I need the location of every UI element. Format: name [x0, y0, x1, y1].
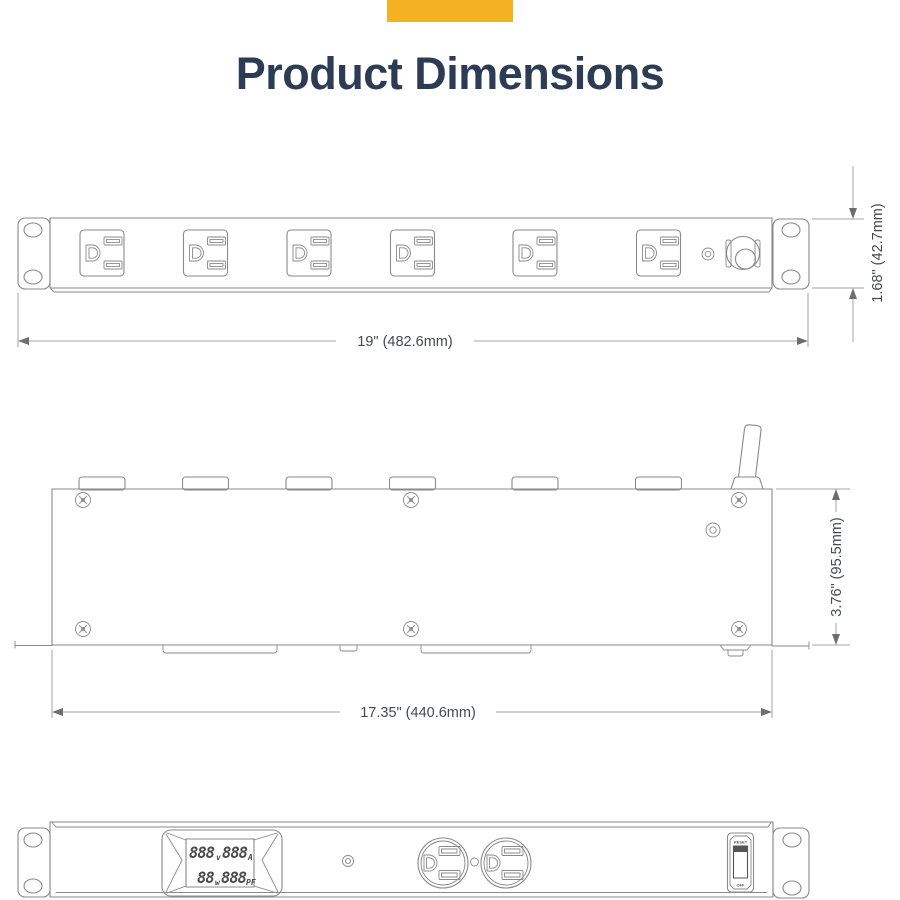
front-width-label: 19" (482.6mm) — [357, 334, 452, 350]
outlet — [481, 838, 531, 888]
screw-icon — [732, 622, 747, 637]
top-height-label: 3.76" (95.5mm) — [829, 517, 845, 616]
switch-off-label: OFF — [737, 883, 746, 888]
outlet — [184, 230, 228, 276]
front-edge-flange — [15, 642, 809, 657]
power-cord — [731, 425, 763, 489]
rocker-top-bar — [734, 847, 747, 853]
rack-ear-hole — [782, 223, 800, 237]
top-view: 17.35" (440.6mm) 3.76" (95.5mm) — [15, 425, 850, 721]
screw-icon — [76, 493, 91, 508]
outlet — [80, 230, 124, 276]
panel-hole-small — [471, 858, 479, 866]
lcd-watts-value: 88 — [197, 869, 214, 887]
front-height-label: 1.68" (42.7mm) — [870, 203, 886, 302]
power-switch: RESET OFF — [728, 833, 754, 892]
outlet — [418, 838, 468, 888]
front-width-dimension: 19" (482.6mm) — [18, 293, 808, 350]
switch-bump — [720, 645, 751, 656]
lcd-volts-unit: v — [216, 853, 221, 862]
chassis-hole — [706, 523, 720, 537]
lcd-display: 888 v 888 A 88 w 888 PF — [162, 830, 282, 896]
screw-icon — [732, 493, 747, 508]
rack-ear-hole — [24, 223, 42, 237]
lcd-pf-unit: PF — [246, 878, 256, 887]
mounting-bracket-left — [18, 218, 50, 289]
strip-body — [50, 822, 773, 897]
front-view: 19" (482.6mm) 1.68" (42.7mm) — [18, 166, 886, 350]
led-indicator — [702, 248, 714, 260]
screw-icon — [76, 622, 91, 637]
lcd-volts-value: 888 — [189, 844, 215, 862]
outlet — [513, 230, 557, 276]
switch-reset-label: RESET — [734, 840, 748, 845]
technical-drawing: 19" (482.6mm) 1.68" (42.7mm) — [0, 0, 900, 900]
product-dimensions-page: Product Dimensions — [0, 0, 900, 900]
screw-icon — [404, 622, 419, 637]
panel-hole — [343, 856, 354, 867]
rack-ear-hole — [782, 270, 800, 284]
outlet-bumps — [79, 477, 682, 490]
mounting-bracket-right — [773, 828, 809, 898]
lcd-amps-unit: A — [247, 853, 253, 862]
screw-icon — [404, 493, 419, 508]
outlet — [637, 230, 681, 276]
rack-ear-hole — [783, 881, 801, 895]
outlet — [287, 230, 331, 276]
rack-ear-hole — [783, 833, 801, 847]
rack-ear-hole — [24, 879, 42, 893]
circuit-breaker — [726, 237, 760, 270]
rack-ear-hole — [24, 270, 42, 284]
lcd-pf-value: 888 — [221, 869, 247, 887]
strip-body — [50, 218, 772, 292]
top-width-dimension: 17.35" (440.6mm) — [52, 650, 772, 721]
top-height-dimension: 3.76" (95.5mm) — [776, 489, 850, 645]
mounting-bracket-right — [773, 219, 809, 289]
mounting-bracket-left — [18, 828, 50, 897]
lcd-amps-value: 888 — [222, 844, 248, 862]
outlet — [391, 230, 435, 276]
top-width-label: 17.35" (440.6mm) — [360, 705, 476, 721]
meter-view: 888 v 888 A 88 w 888 PF RESE — [18, 822, 809, 898]
front-height-dimension: 1.68" (42.7mm) — [812, 166, 886, 342]
rack-ear-hole — [24, 833, 42, 847]
